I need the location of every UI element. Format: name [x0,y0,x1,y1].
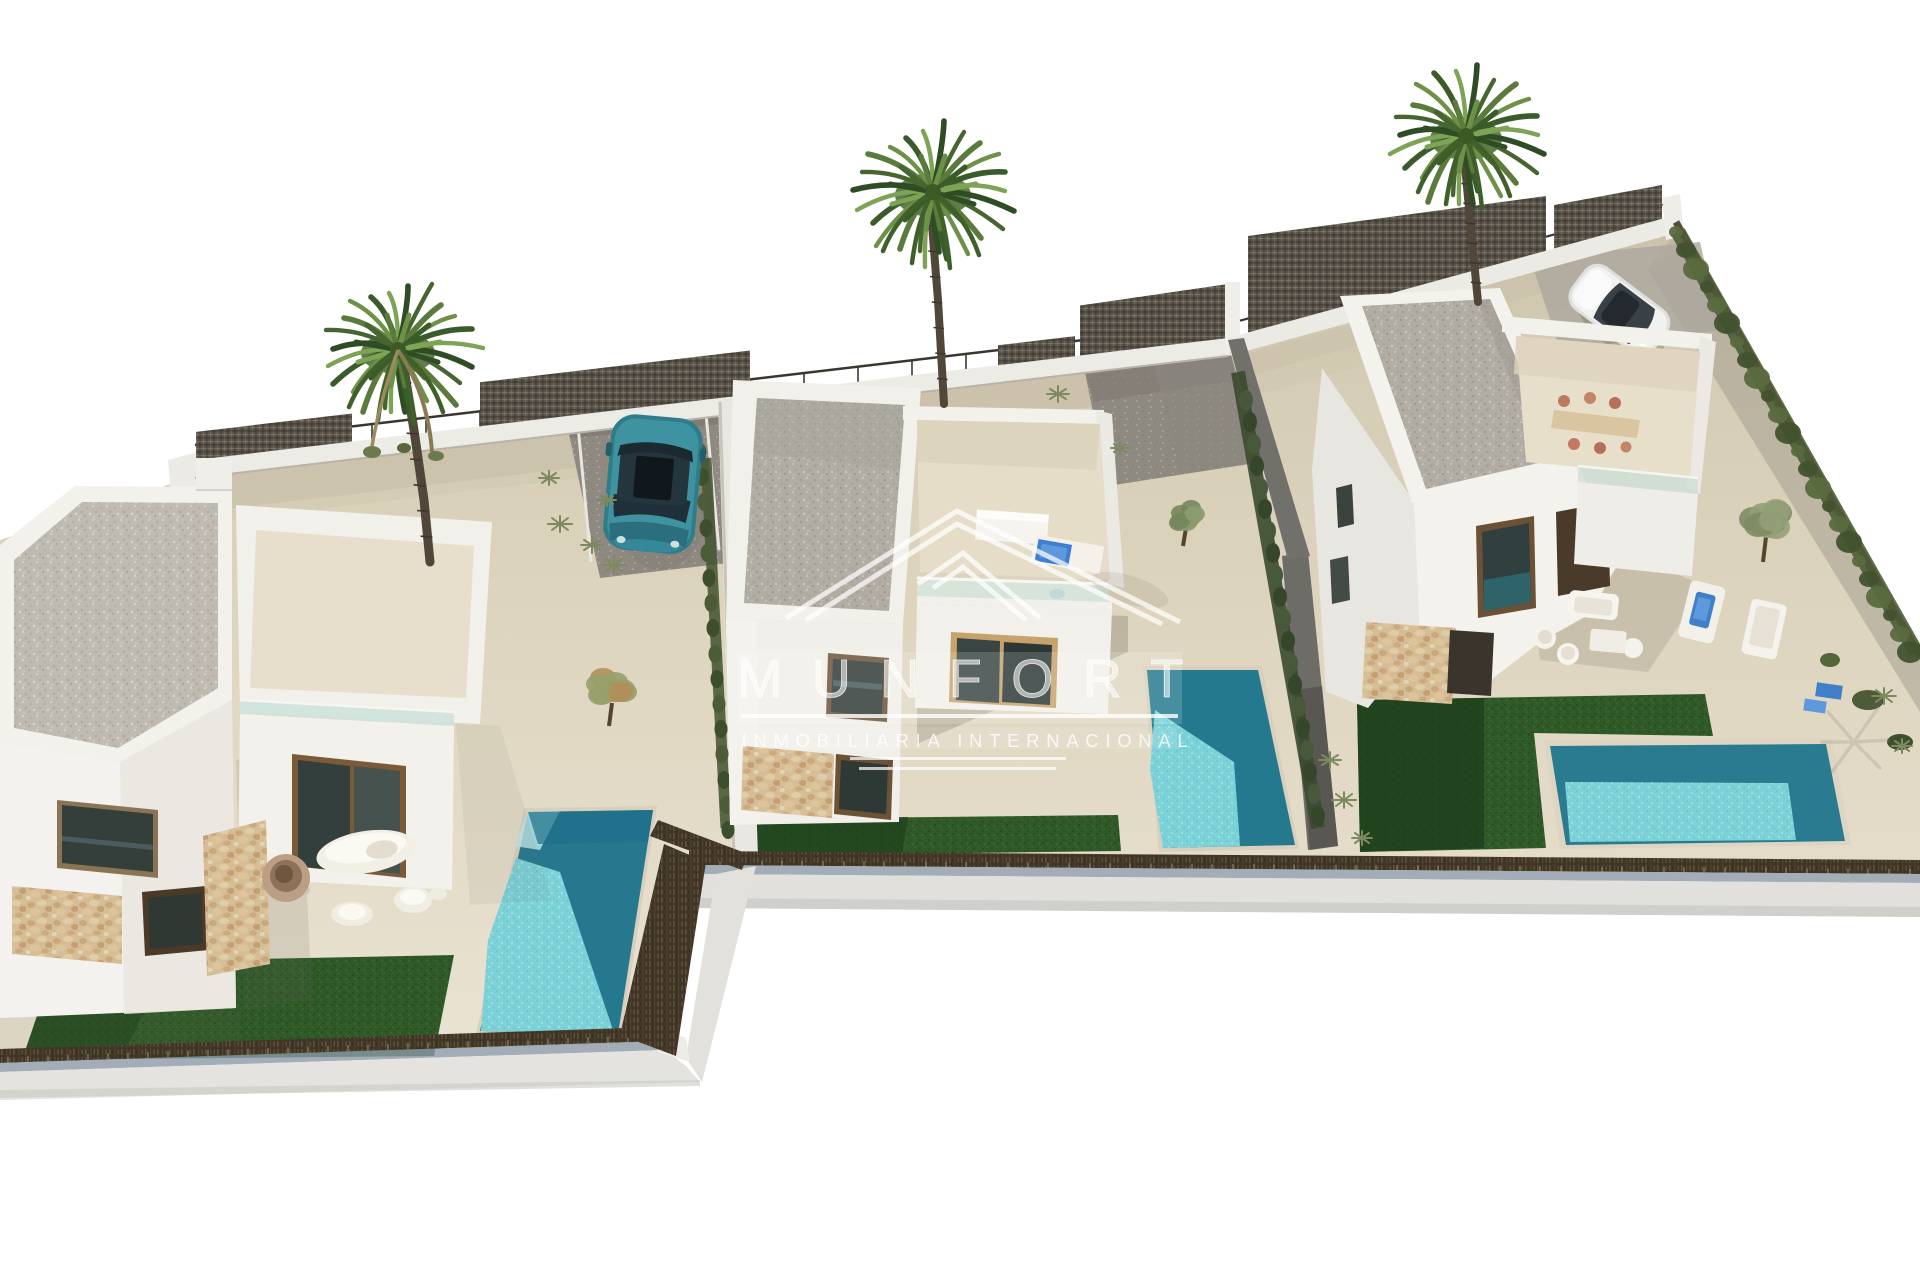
svg-text:INMOBILIARIA INTERNACIONAL: INMOBILIARIA INTERNACIONAL [742,730,1195,751]
svg-text:MUNFORT: MUNFORT [737,649,1212,709]
